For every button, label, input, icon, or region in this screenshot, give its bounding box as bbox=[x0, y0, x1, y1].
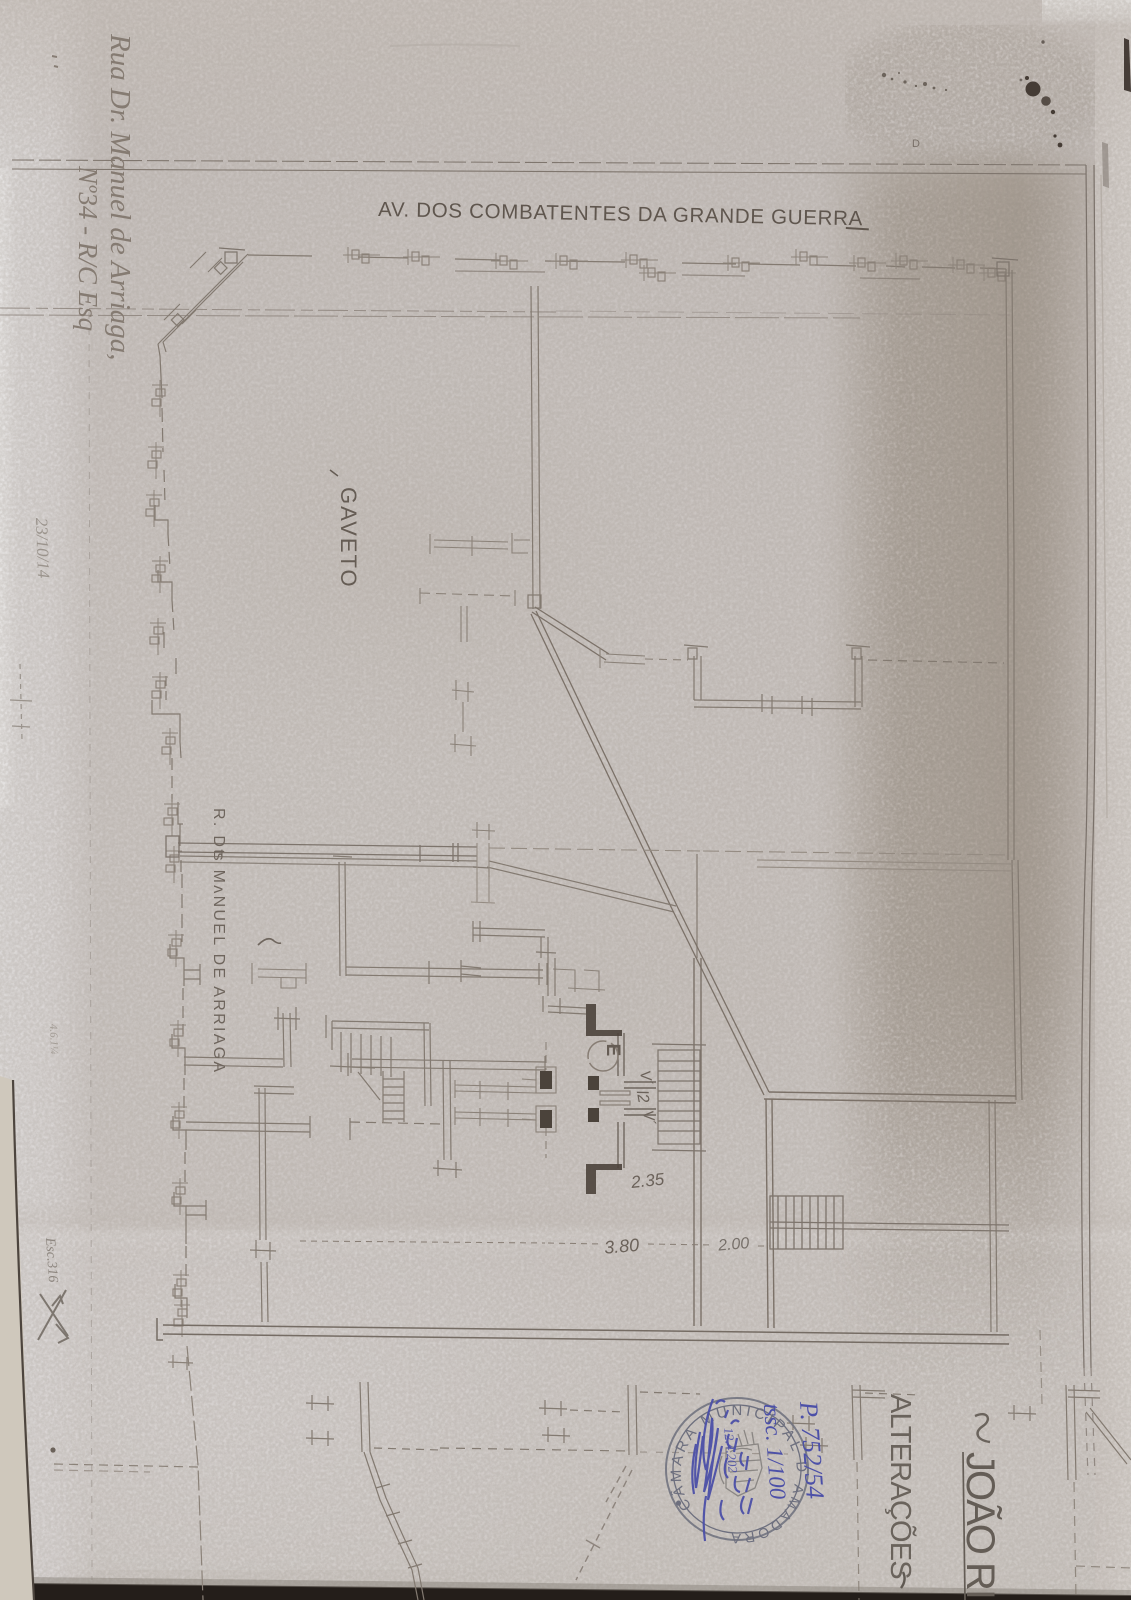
svg-text:ALTERAÇÕES: ALTERAÇÕES bbox=[884, 1394, 918, 1579]
svg-text:E: E bbox=[602, 1044, 623, 1057]
svg-text:2.00: 2.00 bbox=[716, 1235, 750, 1255]
svg-text:V´: V´ bbox=[636, 1069, 655, 1087]
svg-text:D: D bbox=[912, 138, 920, 150]
svg-text:V´: V´ bbox=[639, 1109, 658, 1127]
svg-text:2.35: 2.35 bbox=[629, 1170, 665, 1193]
svg-text:Rua Dr. Manuel de Arriaga,: Rua Dr. Manuel de Arriaga, bbox=[104, 33, 136, 361]
svg-text:Esc.316: Esc.316 bbox=[42, 1236, 60, 1283]
svg-text:23/10/14: 23/10/14 bbox=[32, 517, 53, 579]
svg-text:4.6.1¼: 4.6.1¼ bbox=[47, 1024, 60, 1055]
svg-text:GAVETO: GAVETO bbox=[336, 487, 361, 589]
svg-text:Nº34 - R/C Esq: Nº34 - R/C Esq bbox=[73, 165, 103, 331]
svg-text:R. Dʦ MʌNUEL DE ARRIAGA: R. Dʦ MʌNUEL DE ARRIAGA bbox=[210, 808, 227, 1074]
svg-text:3.80: 3.80 bbox=[603, 1235, 640, 1258]
